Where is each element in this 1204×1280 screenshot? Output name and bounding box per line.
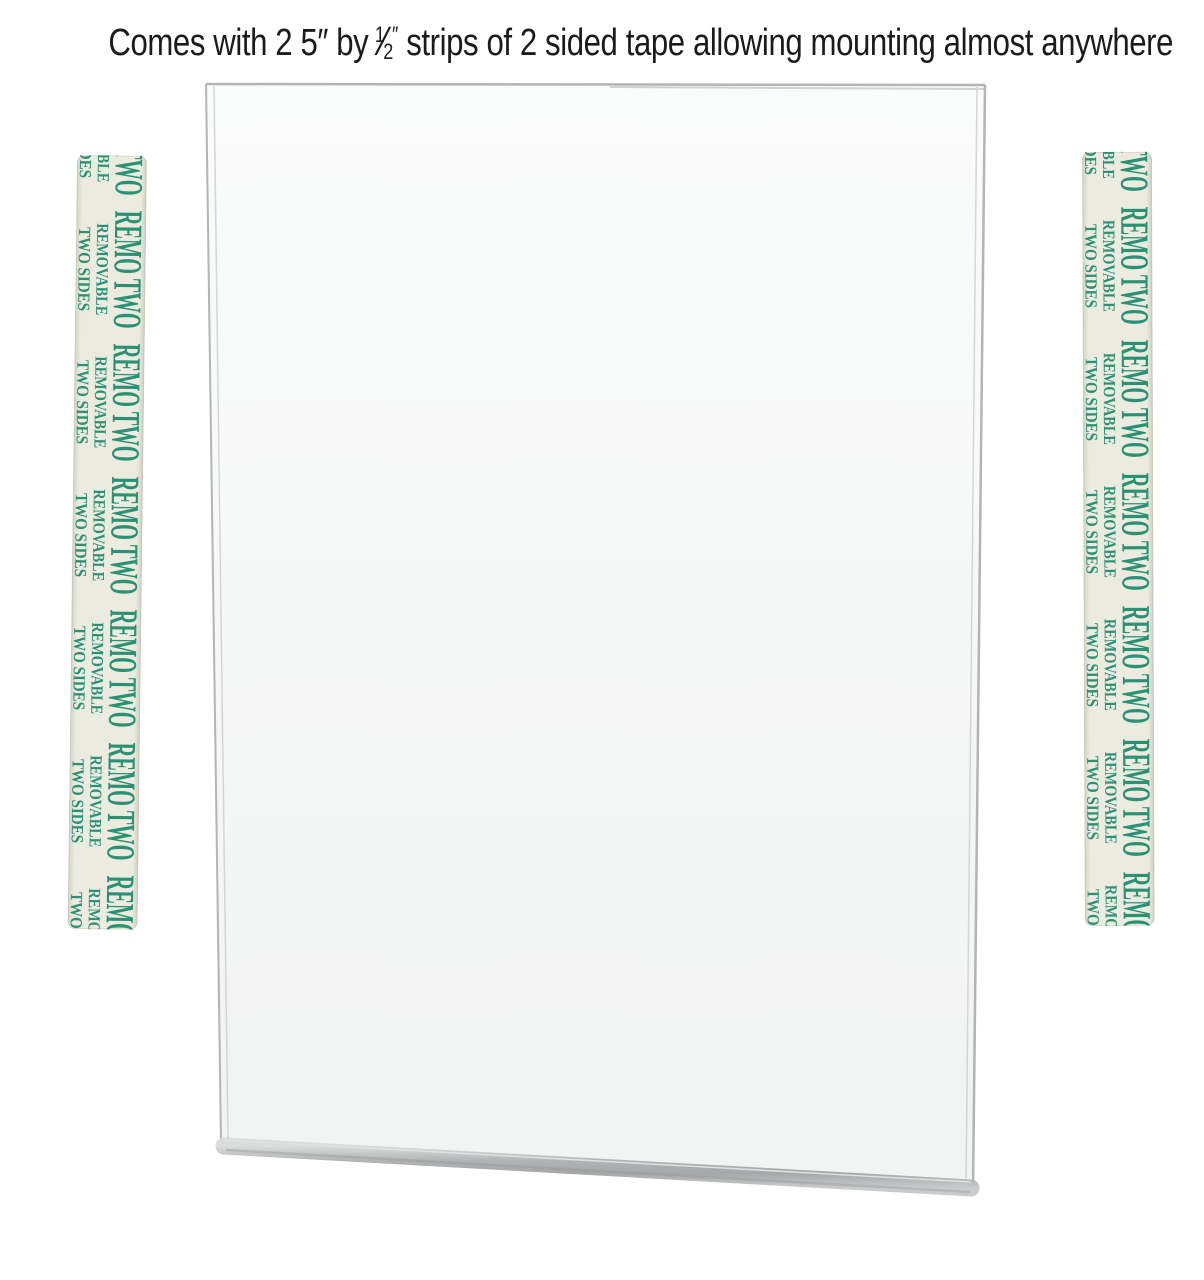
svg-text:REMOVABLE: REMOVABLE (1099, 220, 1118, 312)
svg-text:REMOVABLE: REMOVABLE (87, 622, 107, 714)
sign-holder-top-edge (206, 84, 985, 85)
svg-text:TWO SIDES: TWO SIDES (76, 155, 96, 178)
svg-text:TWO SIDES: TWO SIDES (68, 892, 86, 930)
svg-text:TWO SIDES: TWO SIDES (69, 626, 89, 710)
svg-text:REMOVABLE: REMOVABLE (1102, 885, 1121, 926)
svg-text:TWO SIDES: TWO SIDES (1083, 623, 1102, 707)
svg-text:REMOVABLE: REMOVABLE (92, 223, 112, 315)
svg-text:REMOVABLE: REMOVABLE (89, 489, 109, 581)
svg-text:TWO SIDES: TWO SIDES (72, 360, 92, 444)
svg-text:TWO SIDES: TWO SIDES (1082, 490, 1101, 574)
svg-text:TWO SIDES: TWO SIDES (74, 227, 94, 311)
tape-strip-left: REMO TWOREMOVABLETWO SIDESREMO TWOREMOVA… (68, 155, 147, 930)
svg-text:REMOVABLE: REMOVABLE (1100, 353, 1119, 445)
tape-print: REMO TWOREMOVABLETWO SIDESREMO TWOREMOVA… (68, 155, 147, 930)
svg-text:REMOVABLE: REMOVABLE (94, 155, 114, 182)
svg-text:TWO SIDES: TWO SIDES (1082, 152, 1100, 175)
svg-text:REMOVABLE: REMOVABLE (90, 356, 110, 448)
svg-text:TWO SIDES: TWO SIDES (1083, 756, 1102, 840)
tape-strip-right: REMO TWOREMOVABLETWO SIDESREMO TWOREMOVA… (1082, 152, 1155, 926)
svg-text:TWO SIDES: TWO SIDES (1082, 224, 1101, 308)
tape-print: REMO TWOREMOVABLETWO SIDESREMO TWOREMOVA… (1082, 152, 1155, 926)
svg-text:REMOVABLE: REMOVABLE (1101, 619, 1120, 711)
sign-holder-photo (0, 0, 1204, 1280)
svg-text:REMOVABLE: REMOVABLE (1100, 486, 1119, 578)
sign-holder-panel (206, 84, 985, 1195)
svg-text:REMOVABLE: REMOVABLE (86, 755, 106, 847)
svg-text:REMOVABLE: REMOVABLE (1099, 152, 1118, 179)
svg-text:REMOVABLE: REMOVABLE (1101, 752, 1120, 844)
svg-text:TWO SIDES: TWO SIDES (68, 759, 88, 843)
svg-text:TWO SIDES: TWO SIDES (71, 493, 91, 577)
svg-text:TWO SIDES: TWO SIDES (1084, 889, 1103, 926)
svg-text:TWO SIDES: TWO SIDES (1082, 357, 1101, 441)
